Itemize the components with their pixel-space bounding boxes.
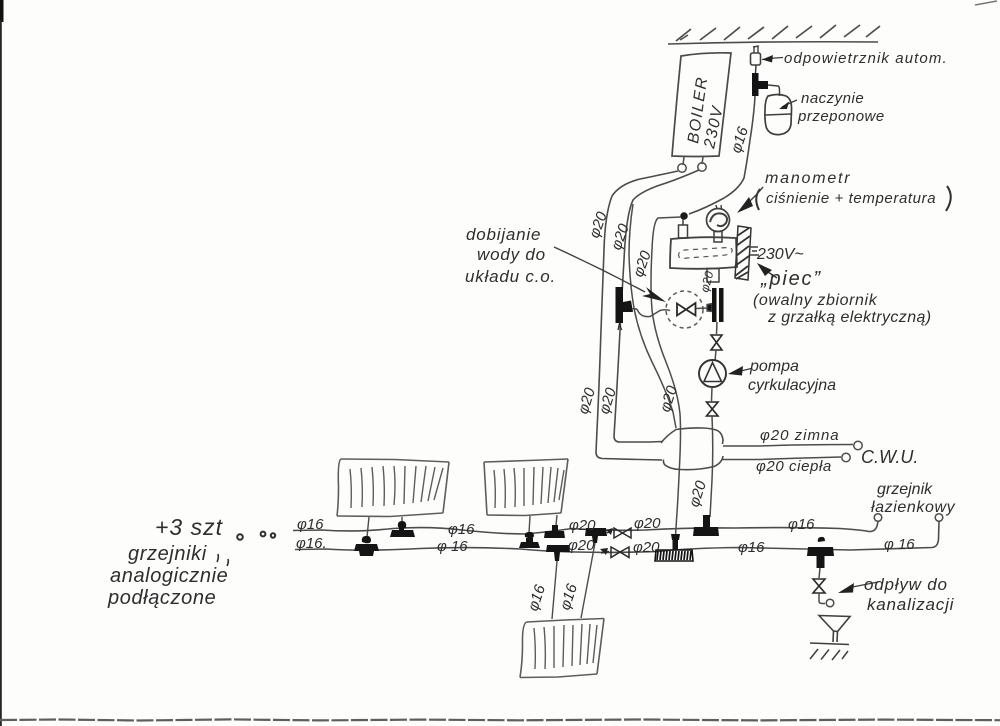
svg-text:cyrkulacyjna: cyrkulacyjna: [748, 377, 836, 394]
svg-text:podłączone: podłączone: [107, 587, 216, 609]
svg-text:przeponowe: przeponowe: [797, 108, 885, 125]
svg-text:odpływ do: odpływ do: [864, 575, 948, 594]
svg-text:φ16: φ16: [788, 516, 815, 533]
svg-text:kanalizacji: kanalizacji: [867, 595, 955, 614]
svg-text:φ20 zimna: φ20 zimna: [760, 427, 840, 444]
svg-text:φ 16: φ 16: [884, 536, 915, 553]
svg-text:φ16: φ16: [448, 521, 475, 538]
svg-text:230V~: 230V~: [756, 246, 804, 263]
svg-text:pompa: pompa: [749, 358, 799, 375]
svg-text:z grzałką elektryczną): z grzałką elektryczną): [767, 309, 932, 326]
svg-text:φ20: φ20: [568, 537, 595, 554]
svg-text:analogicznie: analogicznie: [110, 565, 228, 587]
svg-text:φ16: φ16: [297, 516, 324, 533]
svg-text:naczynie: naczynie: [801, 90, 864, 107]
svg-text:dobijanie: dobijanie: [466, 225, 541, 244]
svg-text:grzejniki: grzejniki: [128, 543, 207, 565]
svg-text:φ20: φ20: [569, 517, 596, 534]
svg-text:C.W.U.: C.W.U.: [861, 447, 918, 467]
svg-text:(owalny zbiornik: (owalny zbiornik: [753, 292, 878, 309]
svg-text:łazienkowy: łazienkowy: [871, 499, 956, 516]
svg-text:układu c.o.: układu c.o.: [465, 267, 556, 286]
svg-text:φ16: φ16: [738, 539, 765, 556]
svg-text:„piec”: „piec”: [760, 268, 822, 290]
svg-text:manometr: manometr: [765, 170, 851, 187]
svg-text:ciśnienie + temperatura: ciśnienie + temperatura: [766, 190, 936, 207]
svg-text:wody do: wody do: [477, 245, 546, 264]
svg-text:φ20 ciepła: φ20 ciepła: [756, 458, 832, 475]
svg-text:φ16.: φ16.: [296, 535, 327, 552]
svg-text:φ 16: φ 16: [437, 538, 468, 555]
svg-text:+3 szt: +3 szt: [155, 514, 224, 540]
svg-text:odpowietrznik autom.: odpowietrznik autom.: [784, 50, 948, 67]
svg-text:φ20: φ20: [634, 515, 661, 532]
svg-text:grzejnik: grzejnik: [877, 481, 933, 498]
